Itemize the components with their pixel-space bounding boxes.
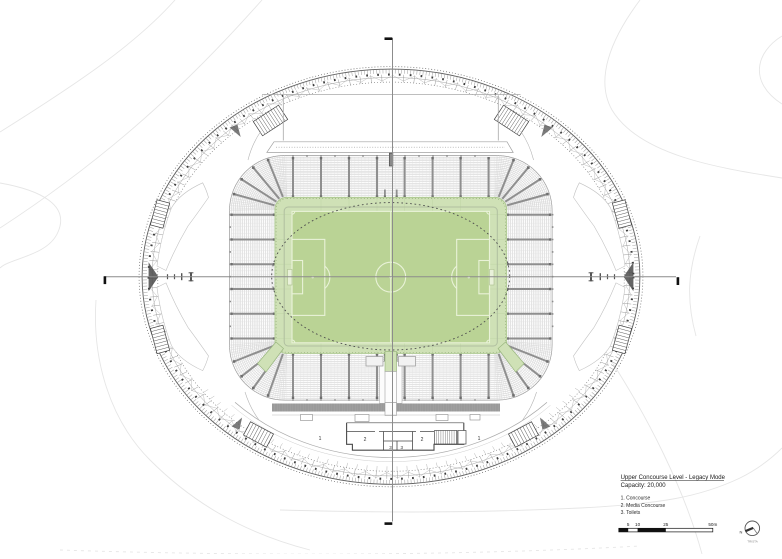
svg-text:5: 5 xyxy=(627,522,630,527)
svg-text:Capacity: 20,000: Capacity: 20,000 xyxy=(621,483,667,489)
svg-text:10: 10 xyxy=(635,522,641,527)
svg-text:50m: 50m xyxy=(708,522,717,527)
svg-text:2: 2 xyxy=(364,437,367,443)
svg-text:25: 25 xyxy=(663,522,669,527)
svg-text:N: N xyxy=(740,530,743,535)
svg-text:Upper Concourse Level - Legacy: Upper Concourse Level - Legacy Mode xyxy=(621,475,726,481)
svg-text:2. Media Concourse: 2. Media Concourse xyxy=(621,503,666,509)
svg-text:2: 2 xyxy=(421,437,424,443)
svg-text:TRISTA: TRISTA xyxy=(747,540,757,544)
svg-text:1: 1 xyxy=(478,436,481,442)
svg-text:1. Concourse: 1. Concourse xyxy=(621,496,651,502)
svg-text:3. Toilets: 3. Toilets xyxy=(621,510,641,516)
svg-text:1: 1 xyxy=(319,436,322,442)
